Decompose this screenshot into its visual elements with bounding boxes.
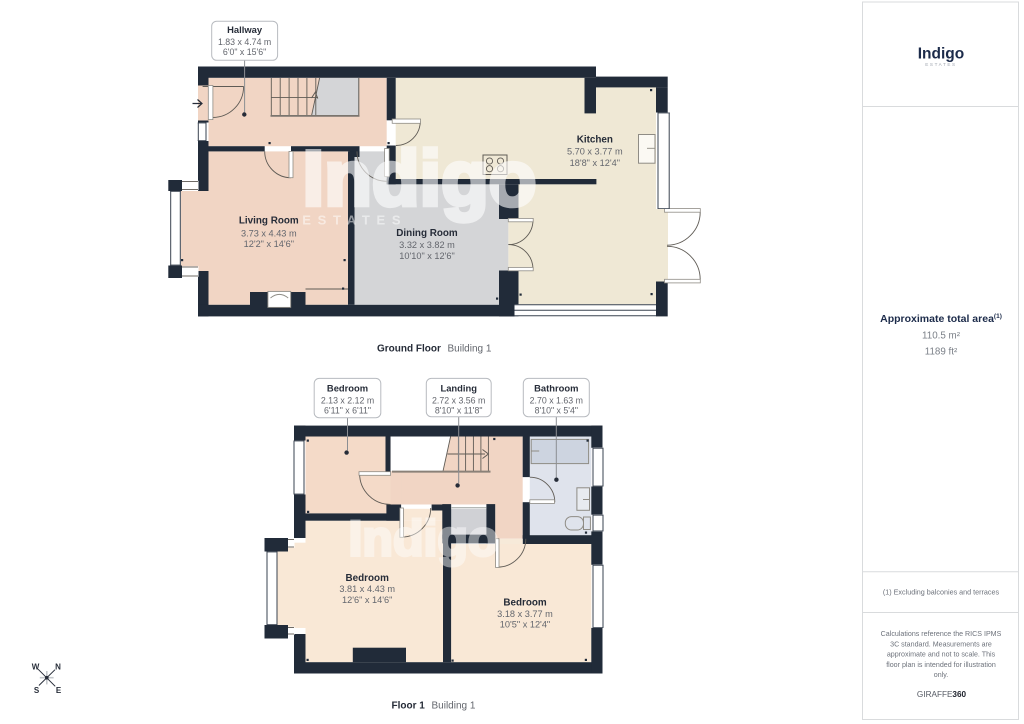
svg-text:Dining Room: Dining Room <box>396 228 458 239</box>
svg-text:ESTATES: ESTATES <box>925 62 956 67</box>
svg-text:floor plan is intended for ill: floor plan is intended for illustration <box>886 661 996 669</box>
svg-text:Ground Floor: Ground Floor <box>377 344 441 355</box>
svg-text:Building 1: Building 1 <box>432 700 476 711</box>
svg-text:12'2" x 14'6": 12'2" x 14'6" <box>244 239 294 249</box>
svg-text:12'6" x 14'6": 12'6" x 14'6" <box>342 595 392 605</box>
svg-text:Bedroom: Bedroom <box>327 383 368 394</box>
svg-text:Floor 1: Floor 1 <box>392 700 426 711</box>
svg-text:10'5" x 12'4": 10'5" x 12'4" <box>500 620 550 630</box>
svg-text:Bathroom: Bathroom <box>534 383 578 394</box>
svg-text:Bedroom: Bedroom <box>503 598 547 609</box>
svg-text:ESTATES: ESTATES <box>302 213 407 228</box>
svg-text:GIRAFFE360: GIRAFFE360 <box>917 690 967 699</box>
svg-text:3.18 x 3.77 m: 3.18 x 3.77 m <box>497 609 553 619</box>
svg-text:6'0" x 15'6": 6'0" x 15'6" <box>223 47 266 57</box>
svg-text:2.72 x 3.56 m: 2.72 x 3.56 m <box>432 395 485 405</box>
svg-text:E: E <box>56 686 62 695</box>
svg-text:Bedroom: Bedroom <box>346 573 390 584</box>
svg-text:only.: only. <box>934 671 948 679</box>
svg-text:S: S <box>34 686 40 695</box>
svg-text:Calculations reference the RIC: Calculations reference the RICS IPMS <box>881 630 1002 638</box>
svg-text:Indigo: Indigo <box>349 511 499 567</box>
svg-text:approximate and not to scale.: approximate and not to scale. This <box>887 651 996 659</box>
svg-text:W: W <box>32 663 40 672</box>
svg-text:10'10" x 12'6": 10'10" x 12'6" <box>399 251 455 261</box>
svg-text:Indigo: Indigo <box>918 46 965 63</box>
svg-text:2.70 x 1.63 m: 2.70 x 1.63 m <box>530 395 583 405</box>
svg-text:Landing: Landing <box>440 383 477 394</box>
svg-text:Living Room: Living Room <box>239 216 299 227</box>
svg-text:3C standard. Measurements are: 3C standard. Measurements are <box>890 640 992 648</box>
svg-text:8'10" x 11'8": 8'10" x 11'8" <box>435 405 483 415</box>
svg-text:Indigo: Indigo <box>303 134 537 222</box>
svg-text:1.83 x 4.74 m: 1.83 x 4.74 m <box>218 37 271 47</box>
svg-text:3.73 x 4.43 m: 3.73 x 4.43 m <box>241 228 297 238</box>
svg-text:(1) Excluding balconies and te: (1) Excluding balconies and terraces <box>883 588 1000 597</box>
svg-text:1189 ft²: 1189 ft² <box>925 347 958 358</box>
svg-text:3.81 x 4.43 m: 3.81 x 4.43 m <box>339 584 395 594</box>
svg-text:8'10" x 5'4": 8'10" x 5'4" <box>535 405 578 415</box>
svg-text:110.5 m²: 110.5 m² <box>922 331 961 342</box>
svg-text:6'11" x 6'11": 6'11" x 6'11" <box>324 405 371 415</box>
svg-text:N: N <box>55 663 61 672</box>
svg-text:5.70 x 3.77 m: 5.70 x 3.77 m <box>567 146 623 156</box>
svg-text:Kitchen: Kitchen <box>577 134 613 145</box>
svg-text:3.32 x 3.82 m: 3.32 x 3.82 m <box>399 240 455 250</box>
svg-text:Hallway: Hallway <box>227 24 263 35</box>
svg-text:Building 1: Building 1 <box>448 344 492 355</box>
svg-text:Approximate total area(1): Approximate total area(1) <box>880 313 1002 325</box>
svg-text:2.13 x 2.12 m: 2.13 x 2.12 m <box>321 395 374 405</box>
svg-text:18'8" x 12'4": 18'8" x 12'4" <box>570 158 620 168</box>
